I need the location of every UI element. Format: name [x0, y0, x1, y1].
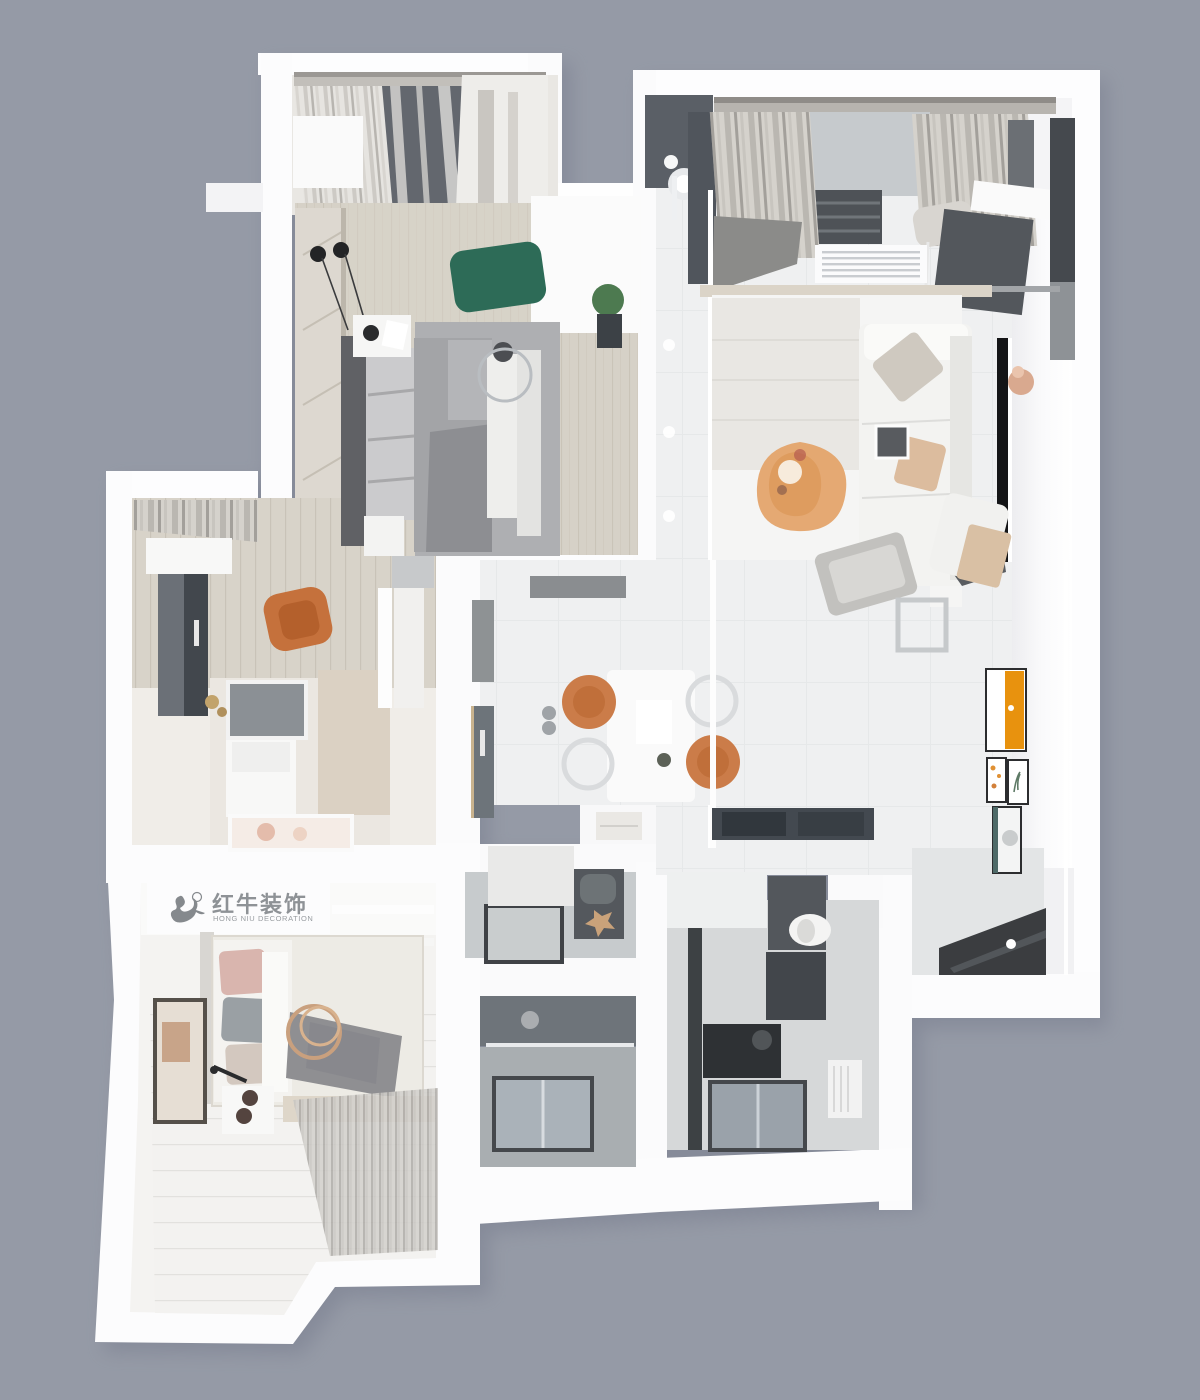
- svg-text:HONG NIU DECORATION: HONG NIU DECORATION: [213, 914, 313, 923]
